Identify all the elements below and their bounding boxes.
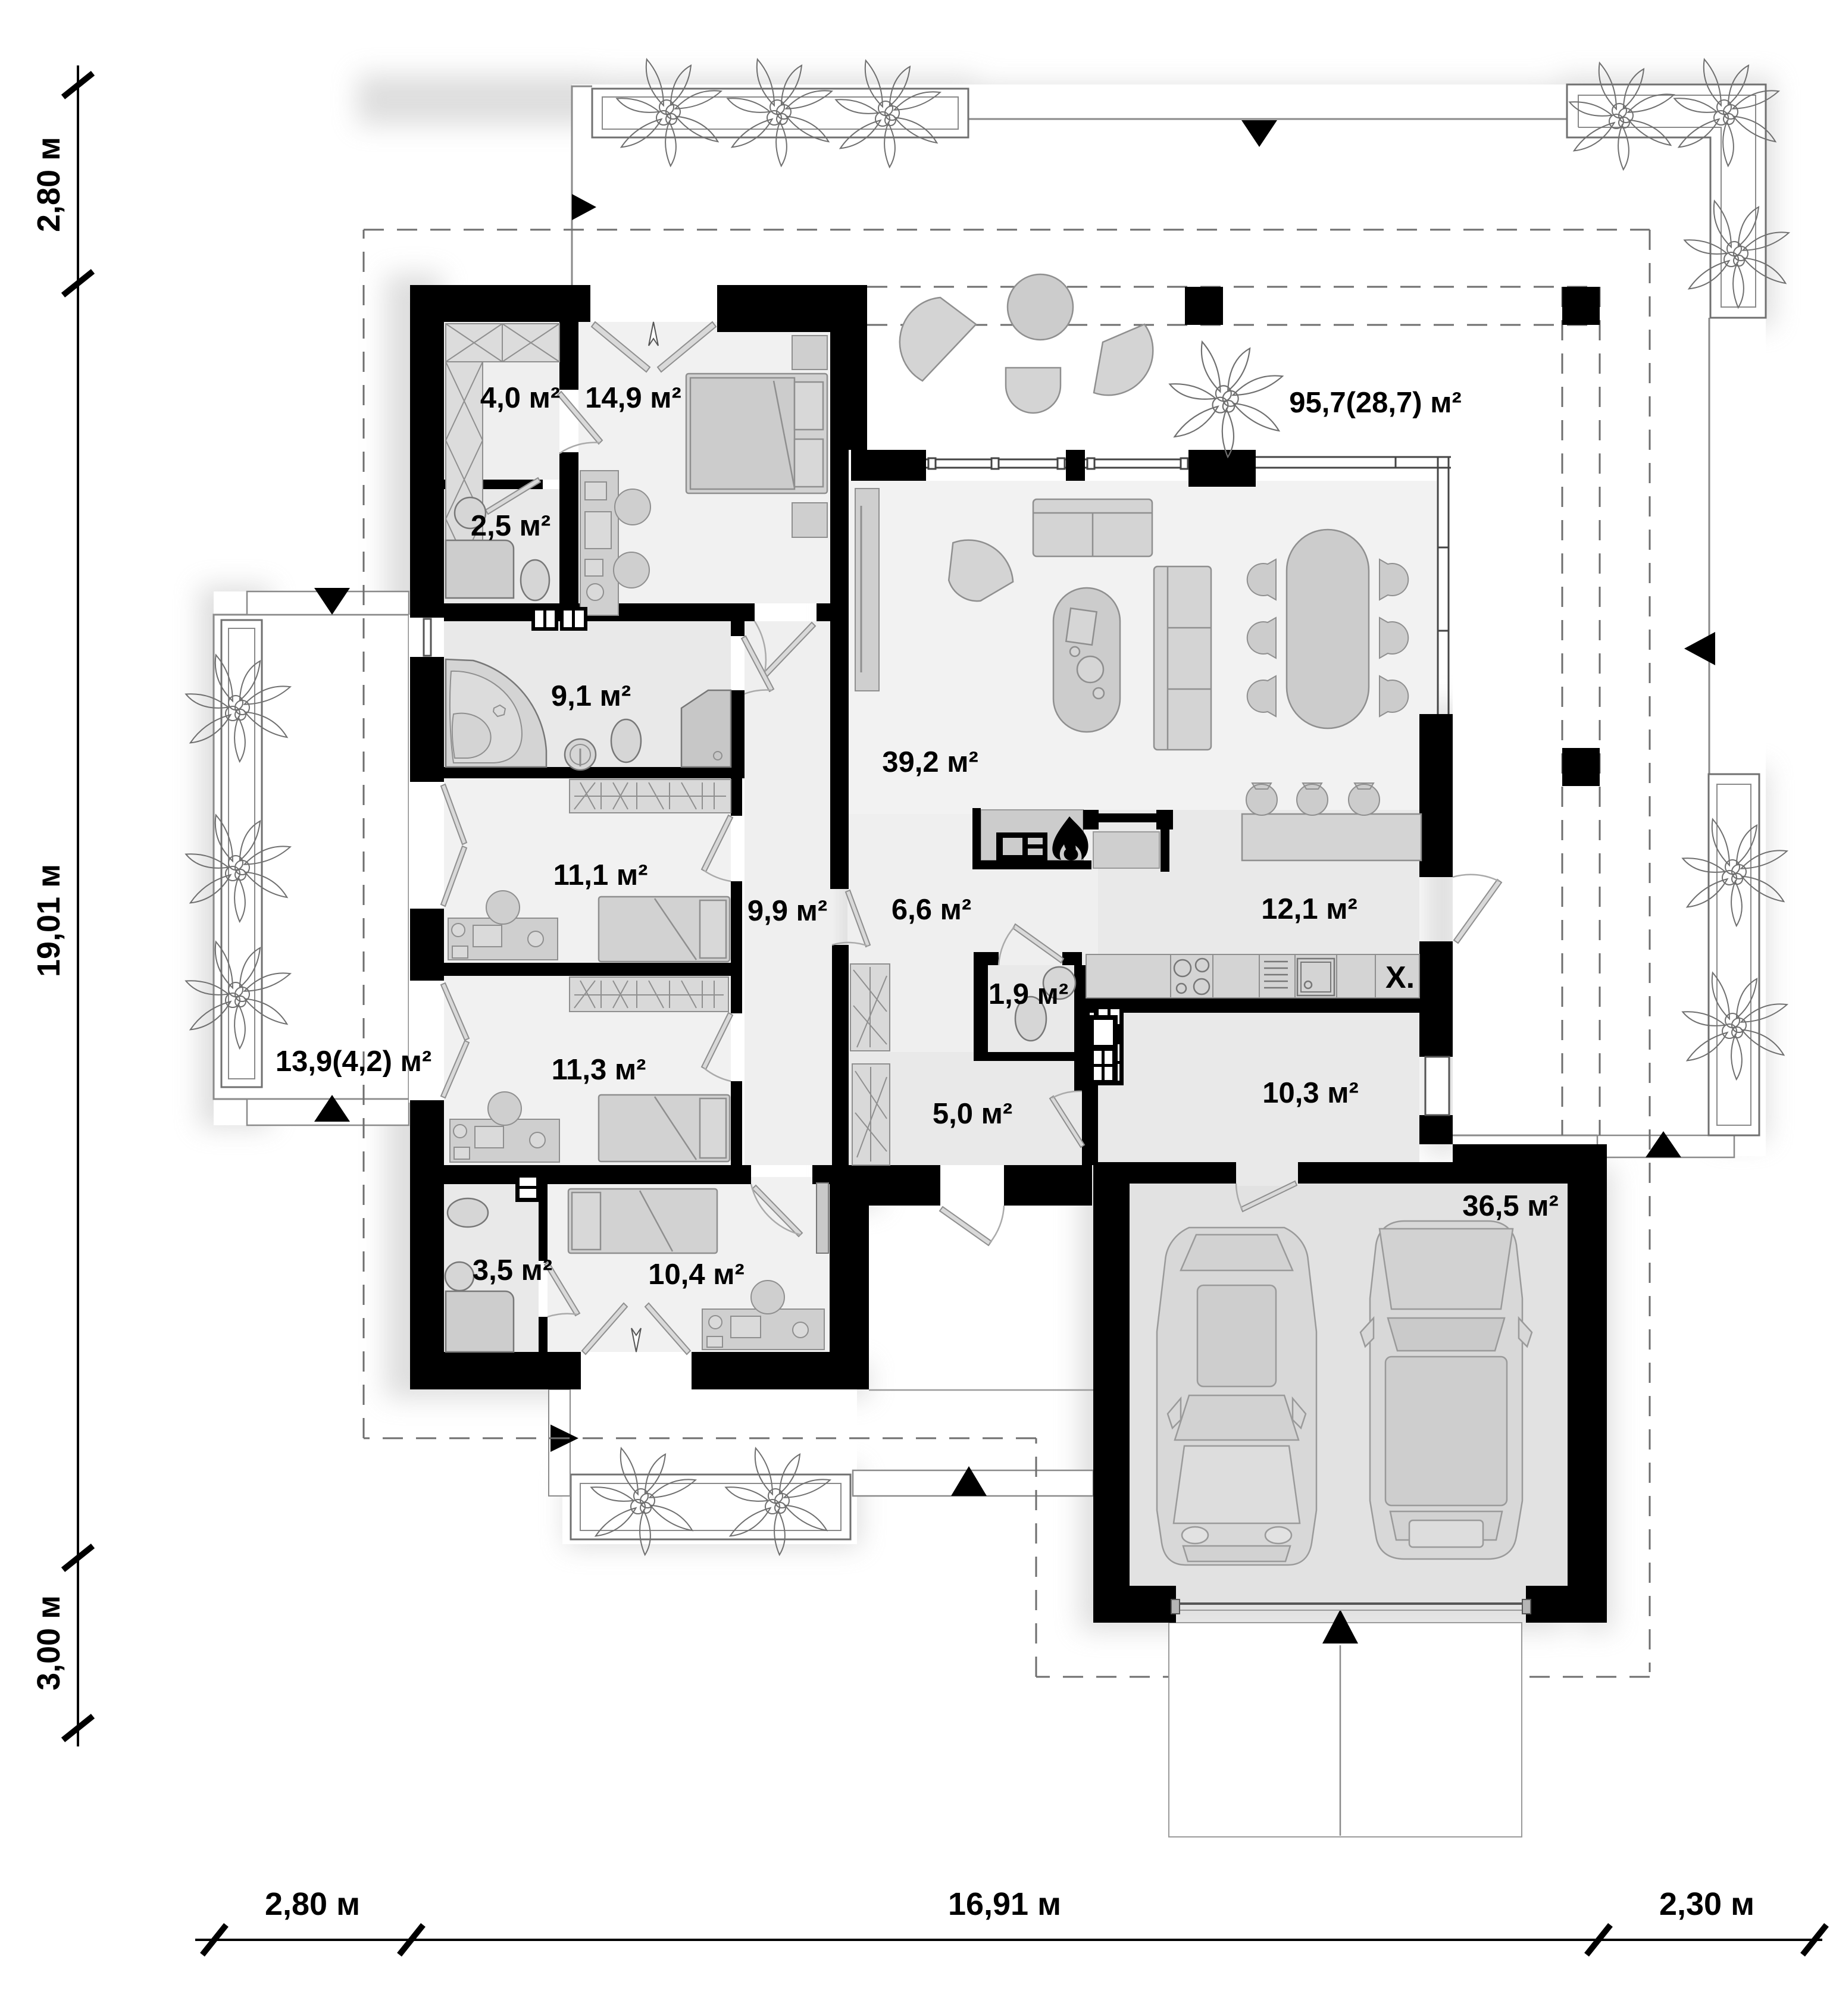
- svg-text:3,5 м²: 3,5 м²: [473, 1254, 552, 1286]
- svg-text:3,00 м: 3,00 м: [31, 1595, 67, 1691]
- svg-text:2,80 м: 2,80 м: [265, 1886, 360, 1922]
- svg-text:19,01 м: 19,01 м: [31, 864, 67, 977]
- svg-text:2,30 м: 2,30 м: [1659, 1886, 1754, 1922]
- svg-text:36,5 м²: 36,5 м²: [1462, 1190, 1559, 1222]
- svg-text:9,9 м²: 9,9 м²: [747, 895, 827, 927]
- svg-text:10,3 м²: 10,3 м²: [1262, 1077, 1359, 1109]
- svg-text:11,1 м²: 11,1 м²: [553, 859, 648, 891]
- svg-text:4,0 м²: 4,0 м²: [480, 382, 560, 414]
- svg-text:14,9 м²: 14,9 м²: [585, 382, 681, 414]
- svg-text:2,5 м²: 2,5 м²: [471, 510, 550, 542]
- svg-text:5,0 м²: 5,0 м²: [933, 1098, 1012, 1130]
- svg-text:X.: X.: [1385, 960, 1415, 995]
- svg-text:9,1 м²: 9,1 м²: [551, 680, 631, 712]
- svg-text:11,3 м²: 11,3 м²: [552, 1054, 646, 1086]
- svg-text:12,1 м²: 12,1 м²: [1261, 893, 1357, 925]
- svg-text:6,6 м²: 6,6 м²: [892, 894, 971, 926]
- svg-text:2,80 м: 2,80 м: [31, 137, 67, 232]
- svg-text:16,91 м: 16,91 м: [948, 1886, 1061, 1922]
- svg-text:95,7(28,7) м²: 95,7(28,7) м²: [1289, 387, 1462, 419]
- svg-text:13,9(4,2) м²: 13,9(4,2) м²: [276, 1045, 431, 1078]
- svg-text:1,9 м²: 1,9 м²: [989, 978, 1068, 1010]
- svg-text:39,2 м²: 39,2 м²: [882, 746, 978, 778]
- svg-text:10,4 м²: 10,4 м²: [648, 1259, 745, 1291]
